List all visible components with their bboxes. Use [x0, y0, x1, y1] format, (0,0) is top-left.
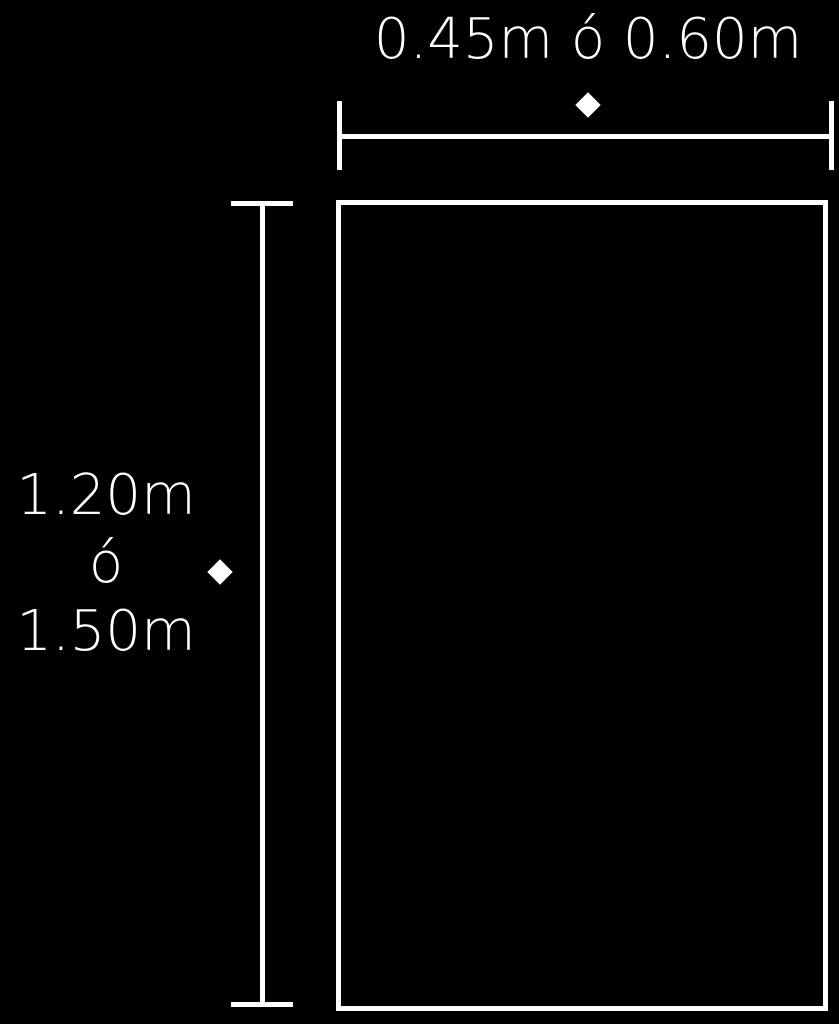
height-dimension-label-line1: 1.20m: [10, 462, 202, 530]
diagram-canvas: 0.45m ó 0.60m 1.20m ó 1.50m: [0, 0, 839, 1024]
rectangle-outline: [336, 200, 828, 1011]
width-dimension-right-tick: [829, 101, 834, 170]
height-dimension-label-line2: ó: [10, 530, 202, 598]
height-dimension-label: 1.20m ó 1.50m: [10, 462, 202, 666]
width-dimension-line: [337, 134, 834, 139]
diamond-icon: [575, 92, 600, 117]
height-dimension-label-line3: 1.50m: [10, 598, 202, 666]
height-dimension-bottom-tick: [231, 1002, 293, 1007]
diamond-icon: [207, 559, 232, 584]
height-dimension-top-tick: [231, 201, 293, 206]
height-dimension-line: [260, 201, 265, 1007]
width-dimension-label: 0.45m ó 0.60m: [338, 8, 838, 72]
width-dimension-left-tick: [337, 101, 342, 170]
